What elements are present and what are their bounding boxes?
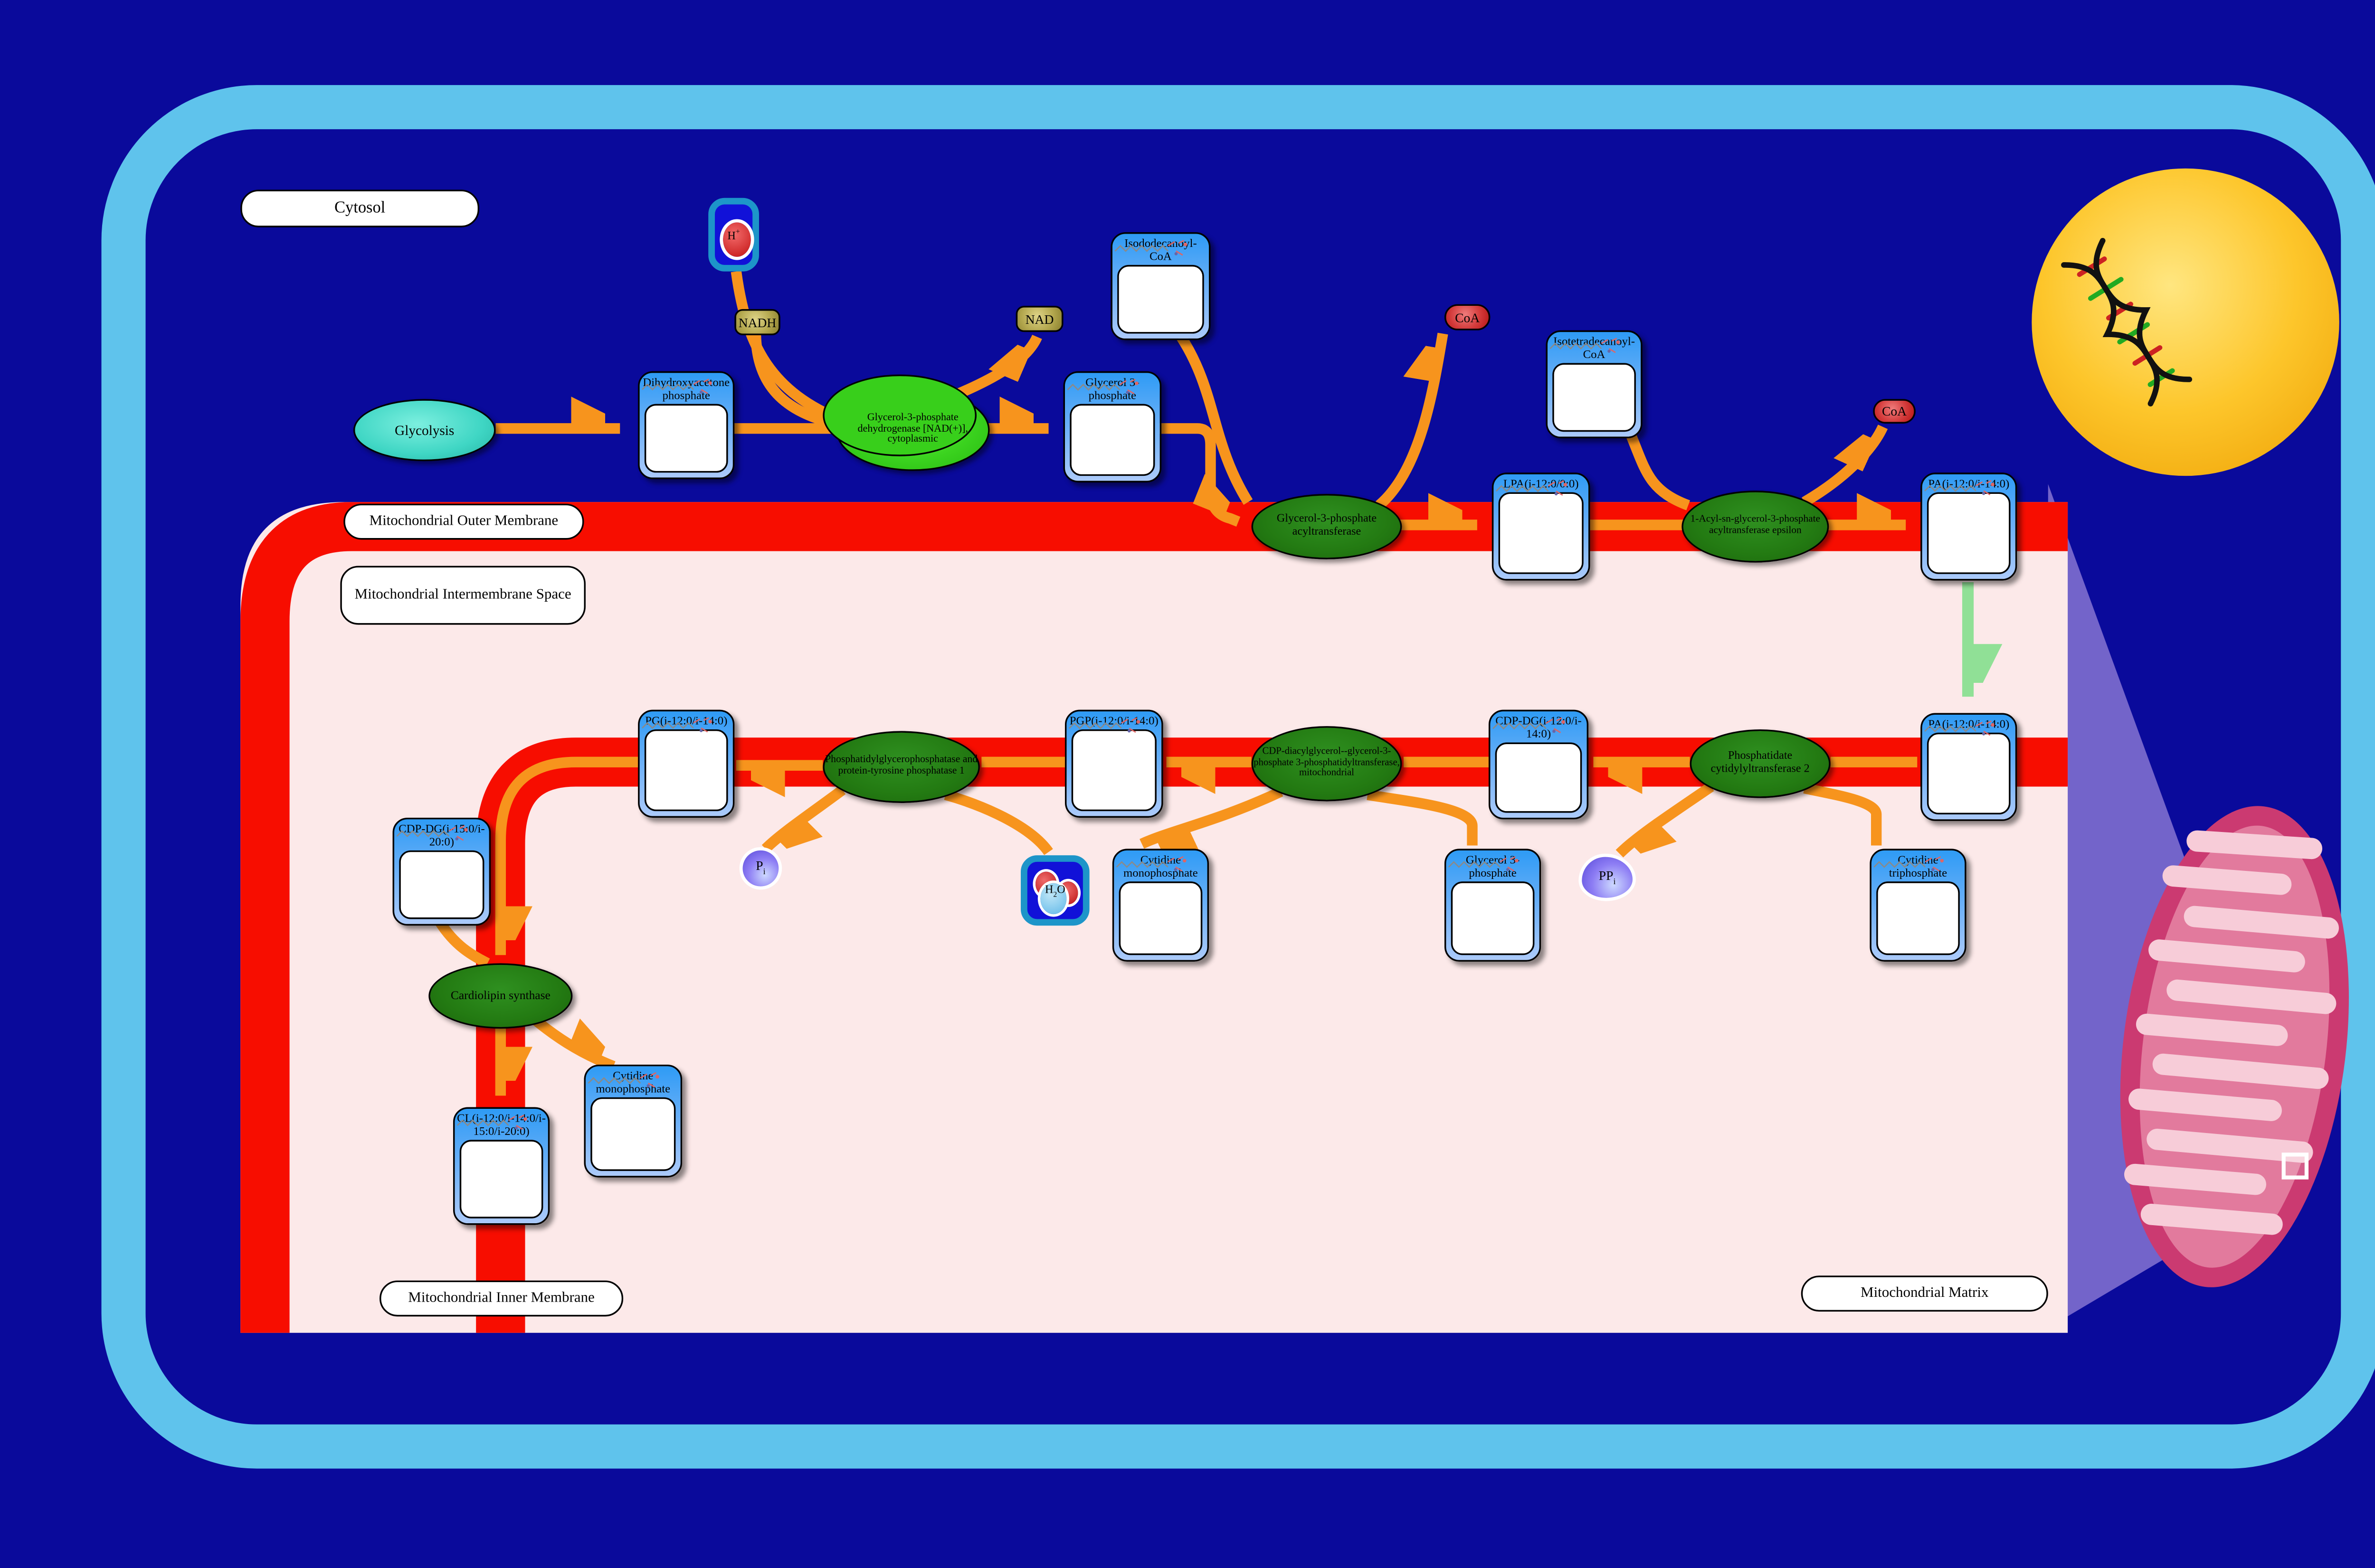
metabolite-card-iso14[interactable]: Isotetradecanoyl-CoA — [1546, 331, 1642, 438]
molecule-structure — [1927, 492, 2004, 502]
enzyme-label: Phosphatidylglycerophosphatase and prote… — [825, 756, 978, 778]
metabolite-card-iso12[interactable]: Isododecanoyl-CoA — [1111, 232, 1210, 340]
molecule-structure-panel — [1552, 363, 1636, 432]
enzyme-ptpmt1[interactable]: Phosphatidylglycerophosphatase and prote… — [823, 731, 980, 803]
molecule-structure-panel — [1117, 265, 1204, 333]
molecule-structure-panel — [1451, 882, 1535, 955]
molecule-structure — [1927, 733, 2004, 743]
metabolite-card-cmp2[interactable]: Cytidine monophosphate — [584, 1065, 682, 1178]
enzyme-label: 1-Acyl-sn-glycerol-3-phosphate acyltrans… — [1683, 516, 1827, 538]
enzyme-gpat[interactable]: Glycerol-3-phosphate acyltransferase — [1252, 494, 1402, 559]
metabolite-card-cdpdg1[interactable]: CDP-DG(i-12:0/i-14:0) — [1489, 710, 1588, 820]
metabolite-card-cl[interactable]: CL(i-12:0/i-14:0/i-15:0/i-20:0) — [453, 1107, 550, 1225]
cofactor-h2o[interactable]: H2O — [1021, 855, 1090, 926]
molecule-structure — [645, 729, 722, 739]
enzyme-label: Cardiolipin synthase — [451, 990, 551, 1002]
cofactor-coa1[interactable]: CoA — [1444, 304, 1490, 331]
molecule-structure-panel — [1927, 492, 2011, 574]
metabolite-card-ctp[interactable]: Cytidine triphosphate — [1870, 849, 1966, 962]
enzyme-label: CDP-diacylglycerol--glycerol-3-phosphate… — [1253, 748, 1400, 780]
molecule-structure-panel — [1876, 882, 1960, 955]
molecule-structure-panel — [1070, 404, 1155, 476]
molecule-structure-panel — [1499, 492, 1584, 574]
enzyme-label: Glycerol-3-phosphate acyltransferase — [1253, 514, 1400, 539]
metabolite-card-pg[interactable]: PG(i-12:0/i-14:0) — [638, 710, 734, 818]
label-matrix: Mitochondrial Matrix — [1801, 1275, 2048, 1312]
molecule-structure-panel — [399, 850, 484, 919]
enzyme-crls1[interactable]: Cardiolipin synthase — [428, 963, 572, 1029]
enzyme-label: Phosphatidate cytidylyltransferase 2 — [1691, 751, 1829, 776]
cofactor-pi[interactable]: Pi — [743, 850, 779, 887]
metabolite-card-g3p_cyto[interactable]: Glycerol 3-phosphate — [1064, 371, 1162, 482]
cofactor-hplus[interactable]: H+ — [708, 198, 759, 272]
metabolite-card-pa_om[interactable]: PA(i-12:0/i-14:0) — [1920, 472, 2017, 580]
enzyme-pgs1[interactable]: CDP-diacylglycerol--glycerol-3-phosphate… — [1252, 726, 1402, 801]
metabolite-card-lpa[interactable]: LPA(i-12:0/0:0) — [1492, 472, 1590, 580]
metabolite-card-dhap[interactable]: Dihydroxyacetone phosphate — [638, 371, 734, 479]
cofactor-nad[interactable]: NAD — [1016, 306, 1064, 332]
enzyme-label: Glycerol-3-phosphate dehydrogenase [NAD(… — [837, 413, 988, 447]
molecule-structure-panel — [1072, 729, 1157, 811]
cofactor-nadh[interactable]: NADH — [734, 309, 780, 335]
pathway-diagram: Cytosol Mitochondrial Outer Membrane Mit… — [0, 0, 2375, 1568]
molecule-structure-panel — [1495, 743, 1582, 813]
molecule-structure — [1072, 729, 1150, 740]
metabolite-card-cmp1[interactable]: Cytidine monophosphate — [1112, 849, 1209, 962]
molecule-structure-panel — [645, 404, 728, 472]
metabolite-card-cdpdg2[interactable]: CDP-DG(i-15:0/i-20:0) — [393, 818, 491, 926]
enzyme-cds2[interactable]: Phosphatidate cytidylyltransferase 2 — [1690, 729, 1831, 798]
enzyme-agpat[interactable]: 1-Acyl-sn-glycerol-3-phosphate acyltrans… — [1681, 491, 1829, 563]
metabolite-card-g3p_mat[interactable]: Glycerol 3-phosphate — [1444, 849, 1541, 962]
cofactor-coa2[interactable]: CoA — [1873, 399, 1916, 424]
molecule-structure-panel — [1927, 733, 2011, 814]
molecule-structure-panel — [1119, 882, 1203, 955]
process-glycolysis[interactable]: Glycolysis — [353, 399, 496, 461]
molecule-structure — [1499, 492, 1577, 503]
molecule-structure-panel — [645, 729, 728, 811]
label-intermembrane-space: Mitochondrial Intermembrane Space — [340, 566, 586, 625]
metabolite-card-pgp[interactable]: PGP(i-12:0/i-14:0) — [1065, 710, 1163, 818]
metabolite-card-pa_im[interactable]: PA(i-12:0/i-14:0) — [1920, 713, 2017, 821]
enzyme-gpd[interactable]: Glycerol-3-phosphate dehydrogenase [NAD(… — [836, 389, 990, 471]
label-inner-membrane: Mitochondrial Inner Membrane — [380, 1281, 623, 1317]
label-cytosol: Cytosol — [240, 189, 479, 227]
molecule-structure-panel — [590, 1097, 675, 1171]
label-outer-membrane: Mitochondrial Outer Membrane — [343, 504, 584, 540]
molecule-structure-panel — [460, 1140, 543, 1219]
